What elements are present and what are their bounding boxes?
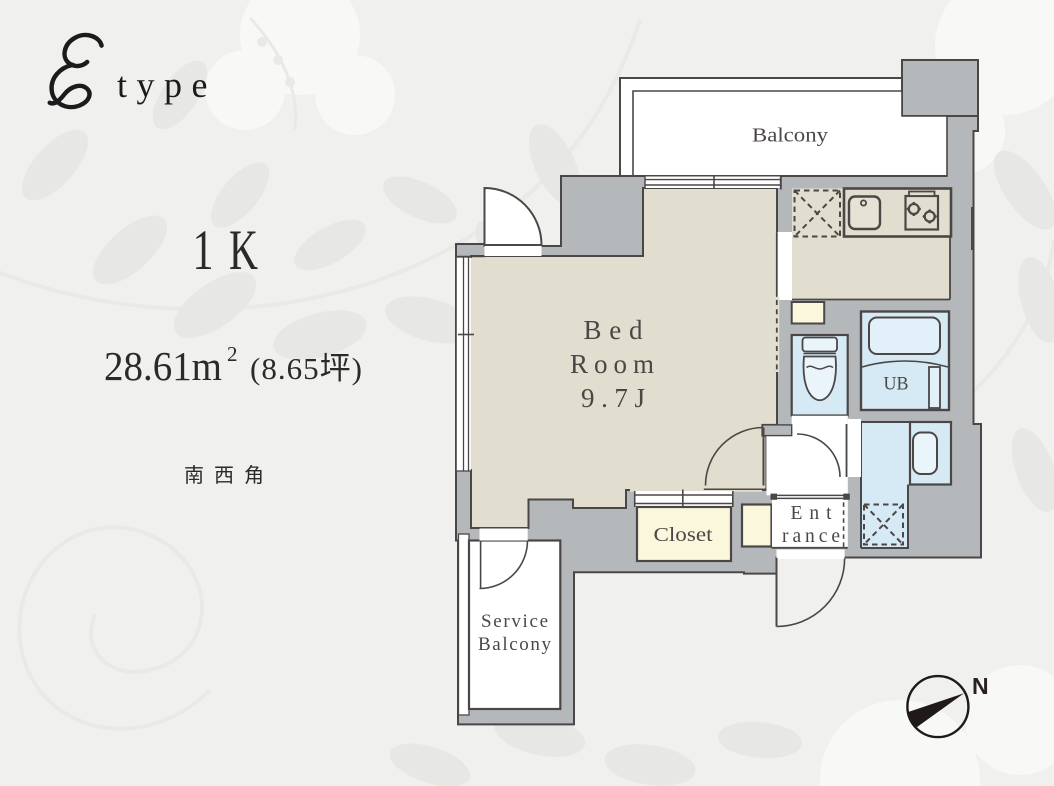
svg-text:Balcony: Balcony — [752, 125, 828, 147]
svg-text:Ent: Ent — [791, 503, 833, 524]
svg-text:UB: UB — [884, 374, 909, 395]
svg-text:Bed: Bed — [584, 315, 644, 345]
svg-text:28.61m: 28.61m — [104, 343, 222, 389]
svg-text:(8.65坪): (8.65坪) — [250, 351, 363, 386]
svg-text:Closet: Closet — [654, 524, 713, 546]
svg-text:1: 1 — [193, 219, 214, 282]
svg-text:K: K — [229, 219, 258, 282]
svg-text:N: N — [972, 673, 989, 699]
svg-text:type: type — [117, 65, 217, 105]
svg-text:南西角: 南西角 — [184, 464, 274, 487]
svg-text:2: 2 — [227, 342, 238, 366]
